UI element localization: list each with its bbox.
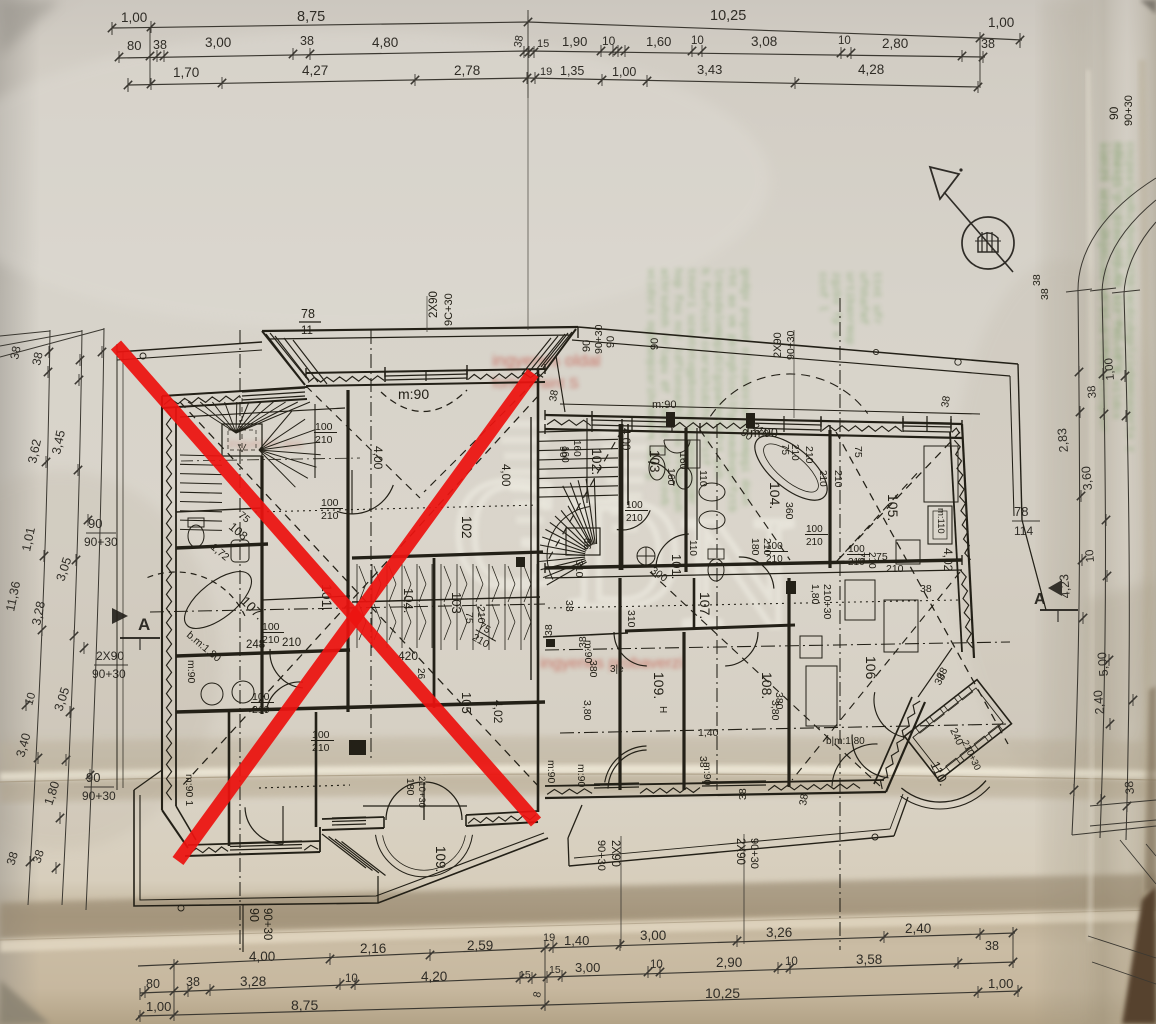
svg-text:gndgv pvgsd oltsamzolafgmvempg: gndgv pvgsd oltsamzolafgmvempgi doun	[739, 268, 751, 506]
svg-text:310: 310	[625, 610, 637, 628]
svg-text:A: A	[138, 615, 150, 634]
svg-text:m:90: m:90	[652, 399, 676, 411]
svg-text:110: 110	[697, 470, 709, 487]
svg-text:210: 210	[315, 434, 333, 446]
svg-text:90+30: 90+30	[785, 330, 797, 360]
svg-text:urtibanrmop: urtibanrmop	[843, 272, 855, 345]
svg-text:2,40: 2,40	[905, 921, 931, 936]
svg-text:90: 90	[88, 516, 102, 531]
svg-text:105.: 105.	[885, 494, 901, 521]
svg-text:210: 210	[803, 446, 815, 464]
svg-text:75: 75	[779, 444, 790, 456]
svg-text:4,28: 4,28	[858, 62, 884, 77]
svg-text:38: 38	[697, 756, 709, 768]
svg-text:90+30: 90+30	[84, 535, 118, 549]
svg-text:90+30: 90+30	[593, 324, 605, 354]
svg-text:4,00: 4,00	[371, 446, 385, 470]
svg-text:109.: 109.	[651, 672, 667, 699]
svg-text:m:90: m:90	[185, 660, 197, 684]
svg-text:38: 38	[985, 939, 999, 953]
svg-text:10: 10	[602, 34, 616, 48]
svg-text:38: 38	[186, 975, 200, 989]
svg-text:90: 90	[1107, 106, 1121, 120]
svg-text:38: 38	[939, 395, 953, 409]
svg-text:210: 210	[282, 637, 301, 649]
svg-text:3,60: 3,60	[1079, 465, 1095, 491]
svg-text:210: 210	[832, 470, 844, 488]
svg-text:38: 38	[797, 793, 811, 807]
svg-text:248: 248	[246, 639, 265, 651]
svg-text:102: 102	[459, 516, 474, 539]
svg-text:1,00: 1,00	[612, 65, 636, 79]
svg-text:3,26: 3,26	[766, 925, 792, 940]
svg-text:360: 360	[783, 502, 795, 520]
svg-text:38: 38	[737, 788, 749, 800]
svg-text:2,83: 2,83	[1055, 427, 1071, 453]
svg-text:2X90: 2X90	[428, 291, 440, 318]
svg-text:38: 38	[543, 624, 555, 636]
svg-text:100: 100	[262, 621, 280, 633]
svg-text:2X90: 2X90	[609, 840, 621, 867]
svg-text:105: 105	[459, 692, 474, 714]
svg-text:H: H	[657, 706, 668, 713]
svg-text:m:110: m:110	[935, 508, 946, 534]
svg-text:38: 38	[1122, 780, 1137, 795]
svg-text:4,02: 4,02	[941, 548, 955, 572]
svg-text:100: 100	[848, 544, 865, 555]
svg-text:107.: 107.	[697, 592, 713, 619]
svg-text:4,00: 4,00	[619, 428, 631, 450]
svg-text:180: 180	[404, 778, 416, 796]
svg-text:3,28: 3,28	[240, 974, 266, 989]
svg-text:4,27: 4,27	[302, 63, 328, 78]
svg-text:ccnf l: ccnf l	[816, 272, 828, 312]
svg-text:38: 38	[1031, 274, 1043, 286]
svg-text:10: 10	[650, 959, 663, 971]
svg-text:m:90: m:90	[545, 760, 557, 784]
svg-text:90+30: 90+30	[595, 840, 607, 871]
svg-text:100: 100	[626, 500, 643, 511]
svg-text:10: 10	[345, 973, 358, 985]
svg-text:8,75: 8,75	[297, 9, 325, 25]
svg-text:5,00: 5,00	[1095, 651, 1111, 677]
svg-text:38: 38	[547, 389, 561, 403]
svg-text:160: 160	[677, 452, 689, 470]
svg-text:80: 80	[127, 38, 141, 53]
svg-text:4,80: 4,80	[372, 35, 398, 50]
svg-text:90+30: 90+30	[92, 667, 126, 681]
svg-text:3,80: 3,80	[769, 700, 781, 721]
svg-text:90: 90	[605, 336, 617, 348]
svg-text:100: 100	[315, 421, 333, 433]
svg-text:100: 100	[252, 691, 270, 703]
svg-text:D: D	[566, 463, 682, 641]
svg-text:10: 10	[838, 35, 851, 47]
svg-text:3,00: 3,00	[205, 35, 231, 50]
svg-text:78: 78	[301, 307, 315, 321]
svg-text:210: 210	[312, 742, 330, 754]
svg-text:180: 180	[749, 538, 761, 556]
svg-text:90: 90	[581, 340, 593, 352]
svg-text:2,78: 2,78	[454, 63, 480, 78]
svg-text:110: 110	[687, 540, 698, 556]
svg-text:103: 103	[449, 592, 464, 614]
svg-text:2,90: 2,90	[716, 955, 742, 970]
svg-text:4,20: 4,20	[421, 969, 447, 984]
svg-text:9C+30: 9C+30	[443, 293, 455, 326]
svg-text:210+30: 210+30	[416, 776, 427, 808]
svg-text:1,00: 1,00	[121, 10, 147, 25]
svg-text:4,00: 4,00	[249, 949, 275, 964]
svg-text:3,58: 3,58	[856, 952, 882, 967]
svg-text:90+30: 90+30	[261, 908, 273, 940]
svg-text:15: 15	[519, 969, 531, 981]
svg-text:38: 38	[1039, 288, 1051, 300]
svg-text:100: 100	[312, 729, 330, 741]
svg-text:80: 80	[146, 977, 160, 991]
svg-text:10,25: 10,25	[705, 985, 740, 1001]
svg-text:106: 106	[863, 656, 879, 680]
svg-text:1,60: 1,60	[646, 34, 671, 49]
svg-text:3,43: 3,43	[697, 62, 722, 77]
svg-text:38: 38	[512, 34, 526, 48]
svg-text:90: 90	[247, 908, 261, 922]
svg-text:210: 210	[766, 554, 783, 565]
svg-text:210: 210	[817, 470, 828, 487]
svg-text:102.: 102.	[589, 448, 605, 475]
svg-text:10: 10	[785, 956, 798, 968]
svg-text:86: 86	[581, 538, 593, 550]
svg-text:38: 38	[1086, 385, 1099, 399]
svg-text:104.: 104.	[401, 588, 416, 613]
svg-text:4,02: 4,02	[491, 700, 505, 724]
svg-text:1,00: 1,00	[1103, 357, 1117, 380]
svg-text:210+30: 210+30	[821, 584, 833, 619]
svg-text:210: 210	[321, 510, 339, 522]
svg-text:3,80: 3,80	[581, 700, 593, 721]
svg-text:2,40: 2,40	[1091, 689, 1107, 715]
svg-text:38: 38	[981, 37, 995, 51]
svg-text:160: 160	[571, 440, 582, 457]
svg-text:75: 75	[876, 551, 888, 563]
svg-text:90+30: 90+30	[1123, 95, 1135, 126]
svg-text:m:90: m:90	[398, 386, 429, 402]
svg-text:210: 210	[806, 537, 823, 548]
svg-text:90: 90	[86, 770, 100, 785]
svg-text:38: 38	[300, 34, 314, 48]
svg-text:11: 11	[301, 325, 313, 337]
svg-text:ttnt ufr: ttnt ufr	[870, 272, 882, 325]
svg-text:4,00: 4,00	[499, 464, 511, 486]
svg-text:90+30: 90+30	[82, 789, 116, 803]
svg-text:b|m:1,80: b|m:1,80	[826, 736, 865, 747]
svg-text:15: 15	[549, 964, 561, 976]
svg-text:15: 15	[537, 38, 549, 50]
svg-text:90: 90	[557, 446, 569, 458]
svg-text:3,08: 3,08	[751, 34, 777, 49]
svg-text:38: 38	[920, 583, 932, 595]
svg-text:100: 100	[766, 541, 783, 552]
svg-text:10: 10	[1084, 549, 1097, 563]
svg-text:3,00: 3,00	[575, 960, 600, 975]
svg-text:m:90: m:90	[575, 764, 587, 788]
svg-text:160: 160	[665, 468, 677, 486]
svg-text:75: 75	[463, 612, 475, 624]
svg-text:2,80: 2,80	[882, 36, 908, 51]
svg-text:210: 210	[252, 704, 270, 716]
svg-text:10: 10	[691, 35, 704, 47]
svg-text:90+30: 90+30	[748, 838, 760, 869]
svg-text:108.: 108.	[759, 672, 775, 699]
svg-text:104.: 104.	[767, 482, 783, 509]
svg-text:10,25: 10,25	[710, 8, 746, 24]
svg-text:1,00: 1,00	[988, 976, 1013, 991]
svg-text:38: 38	[153, 38, 167, 52]
svg-text:19: 19	[540, 66, 552, 78]
svg-text:210: 210	[626, 513, 643, 524]
svg-text:210: 210	[848, 557, 865, 568]
svg-text:90: 90	[649, 338, 661, 350]
svg-text:2X90: 2X90	[734, 838, 746, 865]
svg-text:1,35: 1,35	[560, 64, 584, 78]
svg-text:103: 103	[647, 450, 662, 473]
svg-text:2X90: 2X90	[96, 649, 124, 663]
svg-text:3,00: 3,00	[640, 928, 666, 943]
svg-text:1,00: 1,00	[146, 999, 171, 1014]
svg-text:m:90: m:90	[582, 640, 594, 664]
svg-text:1,70: 1,70	[173, 65, 199, 80]
svg-text:1,40: 1,40	[564, 933, 589, 948]
svg-text:3|e: 3|e	[610, 664, 624, 675]
svg-text:210: 210	[886, 563, 904, 575]
svg-text:100: 100	[806, 524, 823, 535]
svg-text:8,75: 8,75	[291, 997, 318, 1013]
svg-text:109.: 109.	[433, 846, 448, 872]
svg-text:rht ao vm pblegblccllfpvieaub: rht ao vm pblegblccllfpvieaubvgvrfztb	[725, 268, 737, 512]
svg-text:1,90: 1,90	[562, 34, 587, 49]
svg-text:1,00: 1,00	[988, 15, 1014, 30]
svg-text:2,59: 2,59	[467, 938, 493, 953]
svg-text:2X90: 2X90	[772, 332, 784, 358]
svg-text:lrmssdalompgiditgzpahaoebfrt p: lrmssdalompgiditgzpahaoebfrt puh	[712, 268, 724, 479]
svg-text:2,16: 2,16	[360, 941, 386, 956]
svg-text:1,80: 1,80	[809, 584, 821, 605]
svg-text:adipiscing elit sed do eiusmod: adipiscing elit sed do eiusmod temp	[1113, 142, 1125, 373]
svg-text:1,40: 1,40	[698, 727, 719, 739]
svg-text:75: 75	[852, 446, 864, 458]
svg-text:210: 210	[789, 444, 800, 461]
svg-text:100: 100	[321, 497, 339, 509]
svg-text:38: 38	[563, 600, 575, 612]
svg-text:ufhhafmf: ufhhafmf	[857, 272, 869, 325]
